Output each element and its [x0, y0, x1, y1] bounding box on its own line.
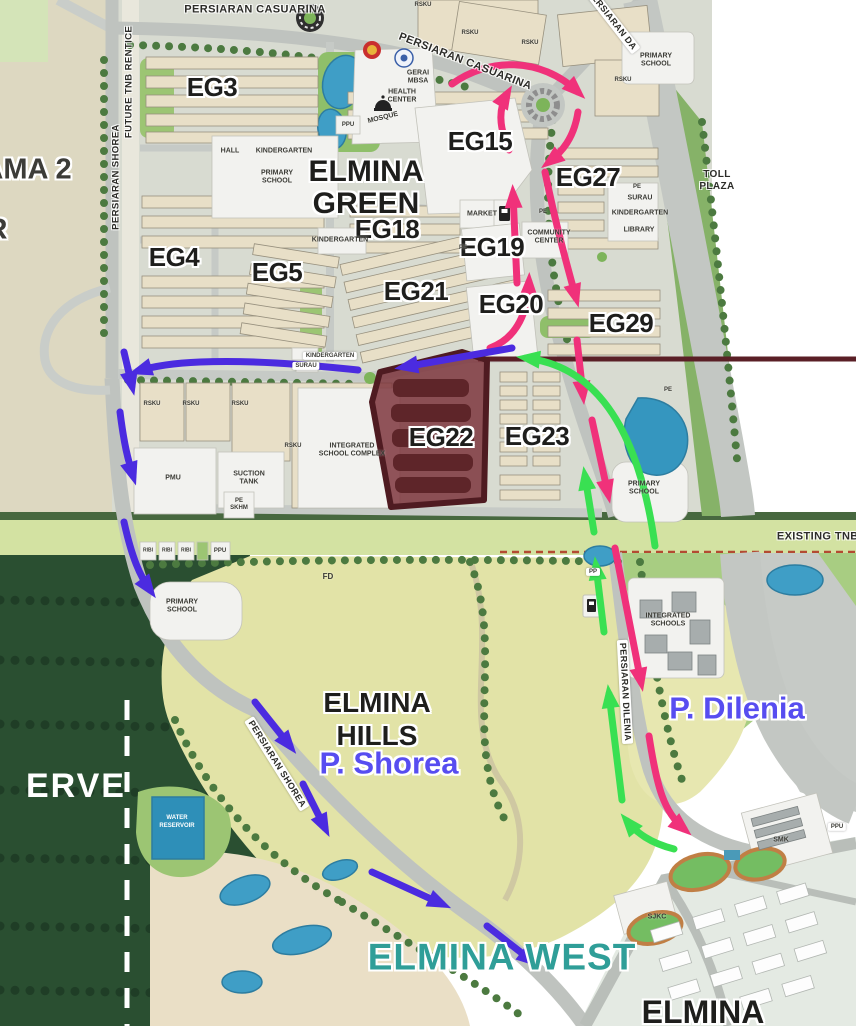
facility-community-center-b: CENTER [535, 237, 564, 244]
facility-smk: SMK [773, 836, 789, 843]
facility-community-center-a: COMMUNITY [527, 229, 570, 236]
facility-ribi-2: RIBI [162, 548, 172, 553]
facility-rsku-4: RSKU [614, 77, 631, 83]
facility-surau-2: SURAU [292, 362, 319, 370]
zone-label-eg22: EG22 [409, 424, 474, 450]
toll-plaza-label-1: TOLL [703, 170, 731, 180]
area-label-r-partial: R [0, 216, 7, 245]
facility-primary-school-1a: PRIMARY [261, 169, 293, 176]
area-label-elmina-green-1: ELMINA [309, 157, 424, 187]
facility-pe-4: PE [664, 387, 672, 393]
junction-roundabout-2 [597, 252, 607, 262]
facility-water-reservoir-b: RESERVOIR [159, 823, 194, 829]
area-label-elmina: ELMINA [642, 996, 765, 1026]
facility-primary-school-2a: PRIMARY [640, 52, 672, 59]
facility-rsku-7: RSKU [231, 401, 248, 407]
facility-pe-1: PE [633, 184, 641, 190]
facility-ppu-3: PPU [828, 823, 846, 831]
facility-primary-school-3a: PRIMARY [166, 598, 198, 605]
facility-primary-school-3b: SCHOOL [167, 606, 197, 613]
facility-market: MARKET [467, 210, 497, 217]
petrol-station-icon [499, 206, 510, 221]
facility-ribi-3: RIBI [181, 548, 191, 553]
zone-label-eg20: EG20 [479, 291, 544, 317]
elmina-masterplan-map: EG3 EG4 EG5 EG15 EG18 EG19 EG20 EG21 EG2… [0, 0, 856, 1026]
facility-sjkc: SJKC [648, 913, 667, 920]
facility-kindergarten-1: KINDERGARTEN [256, 147, 312, 154]
facility-ppu-2: PPU [214, 548, 226, 554]
road-label-future-tnb-rentice: FUTURE TNB RENTICE [124, 26, 134, 138]
area-label-elmina-green-2: GREEN [313, 189, 420, 219]
zone-label-eg21: EG21 [384, 278, 449, 304]
facility-hall: HALL [221, 147, 240, 154]
facility-health-center-b: CENTER [388, 96, 417, 103]
zone-label-eg5: EG5 [252, 259, 303, 285]
facility-isc-a: INTEGRATED [330, 442, 375, 449]
facility-primary-school-2b: SCHOOL [641, 60, 671, 67]
road-label-persiaran-shorea-left: PERSIARAN SHOREA [111, 124, 121, 230]
facility-kindergarten-3: KINDERGARTEN [612, 209, 668, 216]
facility-kindergarten-4: KINDERGARTEN [303, 352, 357, 360]
map-illustration [0, 0, 856, 1026]
facility-integrated-schools-a: INTEGRATED [646, 612, 691, 619]
zone-label-eg19: EG19 [460, 234, 525, 260]
zone-label-eg23: EG23 [505, 423, 570, 449]
facility-ribi-1: RIBI [143, 548, 153, 553]
facility-rsku-6: RSKU [182, 401, 199, 407]
facility-pe-skhm-b: SKHM [230, 505, 248, 511]
facility-pp: PP [586, 568, 600, 576]
toll-plaza-label-2: PLAZA [699, 182, 734, 192]
facility-primary-school-1b: SCHOOL [262, 177, 292, 184]
zone-label-eg3: EG3 [187, 74, 238, 100]
police-crest-icon [395, 49, 413, 67]
facility-rsku-1: RSKU [414, 2, 431, 8]
facility-fd: FD [323, 573, 334, 581]
facility-pe-3: PE [459, 245, 467, 251]
road-label-persiaran-casuarina-top: PERSIARAN CASUARINA [184, 5, 325, 16]
facility-pe-skhm-a: PE [235, 498, 243, 504]
facility-water-reservoir-a: WATER [166, 815, 187, 821]
facility-rsku-8: RSKU [284, 443, 301, 449]
facility-rsku-3: RSKU [521, 40, 538, 46]
zone-label-eg27: EG27 [556, 164, 621, 190]
area-label-ama2: AMA 2 [0, 156, 72, 185]
facility-primary-school-4a: PRIMARY [628, 480, 660, 487]
area-label-p-dilenia: P. Dilenia [669, 693, 805, 724]
facility-isc-b: SCHOOL COMPLEX [319, 450, 385, 457]
facility-surau-1: SURAU [628, 194, 653, 201]
facility-gerai-mbsa-a: GERAI [407, 69, 429, 76]
facility-health-center-a: HEALTH [388, 88, 416, 95]
facility-suction-tank-b: TANK [240, 478, 259, 485]
facility-suction-tank-a: SUCTION [233, 470, 265, 477]
area-label-elmina-hills-1: ELMINA [323, 689, 430, 717]
facility-pmu: PMU [165, 474, 181, 481]
facility-primary-school-4b: SCHOOL [629, 488, 659, 495]
facility-rsku-5: RSKU [143, 401, 160, 407]
facility-integrated-schools-b: SCHOOLS [651, 620, 686, 627]
facility-kindergarten-2: KINDERGARTEN [312, 236, 368, 243]
facility-ppu-1: PPU [342, 122, 354, 128]
facility-gerai-mbsa-b: MBSA [408, 77, 429, 84]
facility-pe-2: PE [539, 209, 547, 215]
road-label-existing-tnb-rentice: EXISTING TNB RENTICE [777, 532, 856, 543]
zone-label-eg15: EG15 [448, 128, 513, 154]
area-label-forest-reserve-partial: ERVE [26, 769, 126, 803]
area-label-elmina-west: ELMINA WEST [368, 939, 637, 976]
facility-library: LIBRARY [624, 226, 655, 233]
fire-crest-icon [363, 41, 381, 59]
facility-rsku-2: RSKU [461, 30, 478, 36]
zone-label-eg4: EG4 [149, 244, 200, 270]
zone-label-eg29: EG29 [589, 310, 654, 336]
area-label-p-shorea: P. Shorea [319, 748, 458, 779]
